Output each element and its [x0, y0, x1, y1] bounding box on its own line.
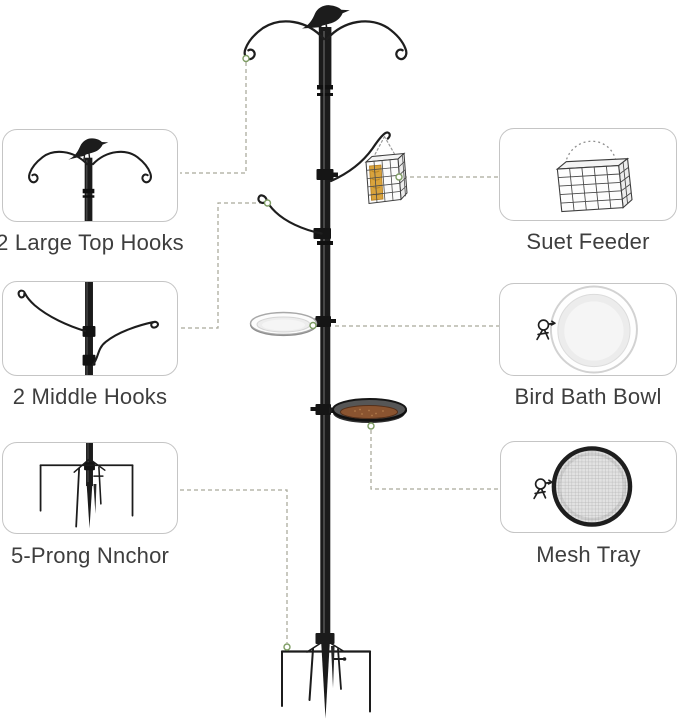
callout-bird-bath: Bird Bath Bowl [499, 283, 677, 409]
bird-feeding-station-diagram: 2 Large Top Hooks Suet Feeder [0, 0, 679, 721]
suet-feeder-cage-main [366, 137, 407, 204]
ring-mesh-tray [368, 423, 374, 429]
callout-label-top-hooks: 2 Large Top Hooks [0, 231, 184, 255]
connector-anchor [180, 490, 287, 643]
mesh-tray-icon [501, 441, 676, 533]
callout-five-prong-anchor: 5-Prong Nnchor [2, 442, 178, 568]
connector-middle-hooks [180, 203, 263, 328]
callout-middle-hooks: 2 Middle Hooks [2, 281, 178, 409]
callout-mesh-tray: Mesh Tray [500, 441, 677, 567]
callout-label-mesh-tray: Mesh Tray [536, 543, 641, 567]
callout-box-five-prong-anchor [2, 442, 178, 534]
ring-suet [396, 174, 402, 180]
callout-suet-feeder: Suet Feeder [499, 128, 677, 254]
dual-top-hooks-with-bird-icon [3, 129, 177, 222]
callout-label-suet-feeder: Suet Feeder [526, 230, 649, 254]
ring-top-hooks [243, 56, 249, 62]
ring-bird-bath [310, 323, 316, 329]
callout-label-five-prong-anchor: 5-Prong Nnchor [11, 544, 169, 568]
bird-bath-bowl-main [251, 313, 321, 336]
main-pole [311, 27, 339, 644]
connector-mesh-tray [371, 430, 501, 489]
connector-lines [180, 62, 501, 643]
callout-label-bird-bath: Bird Bath Bowl [514, 385, 661, 409]
callout-top-hooks: 2 Large Top Hooks [2, 129, 178, 255]
bird-bath-bowl-icon [500, 283, 676, 376]
dual-middle-hooks-icon [3, 281, 177, 376]
pole-clamp-icon [534, 479, 552, 498]
callout-box-suet-feeder [499, 128, 677, 221]
five-prong-anchor-icon [3, 442, 177, 534]
ring-middle-hooks [265, 200, 271, 206]
suet-cage-icon [500, 128, 676, 221]
callout-box-top-hooks [2, 129, 178, 222]
callout-box-middle-hooks [2, 281, 178, 376]
callout-box-bird-bath [499, 283, 677, 376]
callout-label-middle-hooks: 2 Middle Hooks [13, 385, 167, 409]
ground-anchor-main [282, 633, 370, 719]
connector-top-hooks [180, 62, 246, 173]
callout-box-mesh-tray [500, 441, 677, 533]
ring-anchor [284, 644, 290, 650]
mesh-tray-main [329, 399, 406, 423]
